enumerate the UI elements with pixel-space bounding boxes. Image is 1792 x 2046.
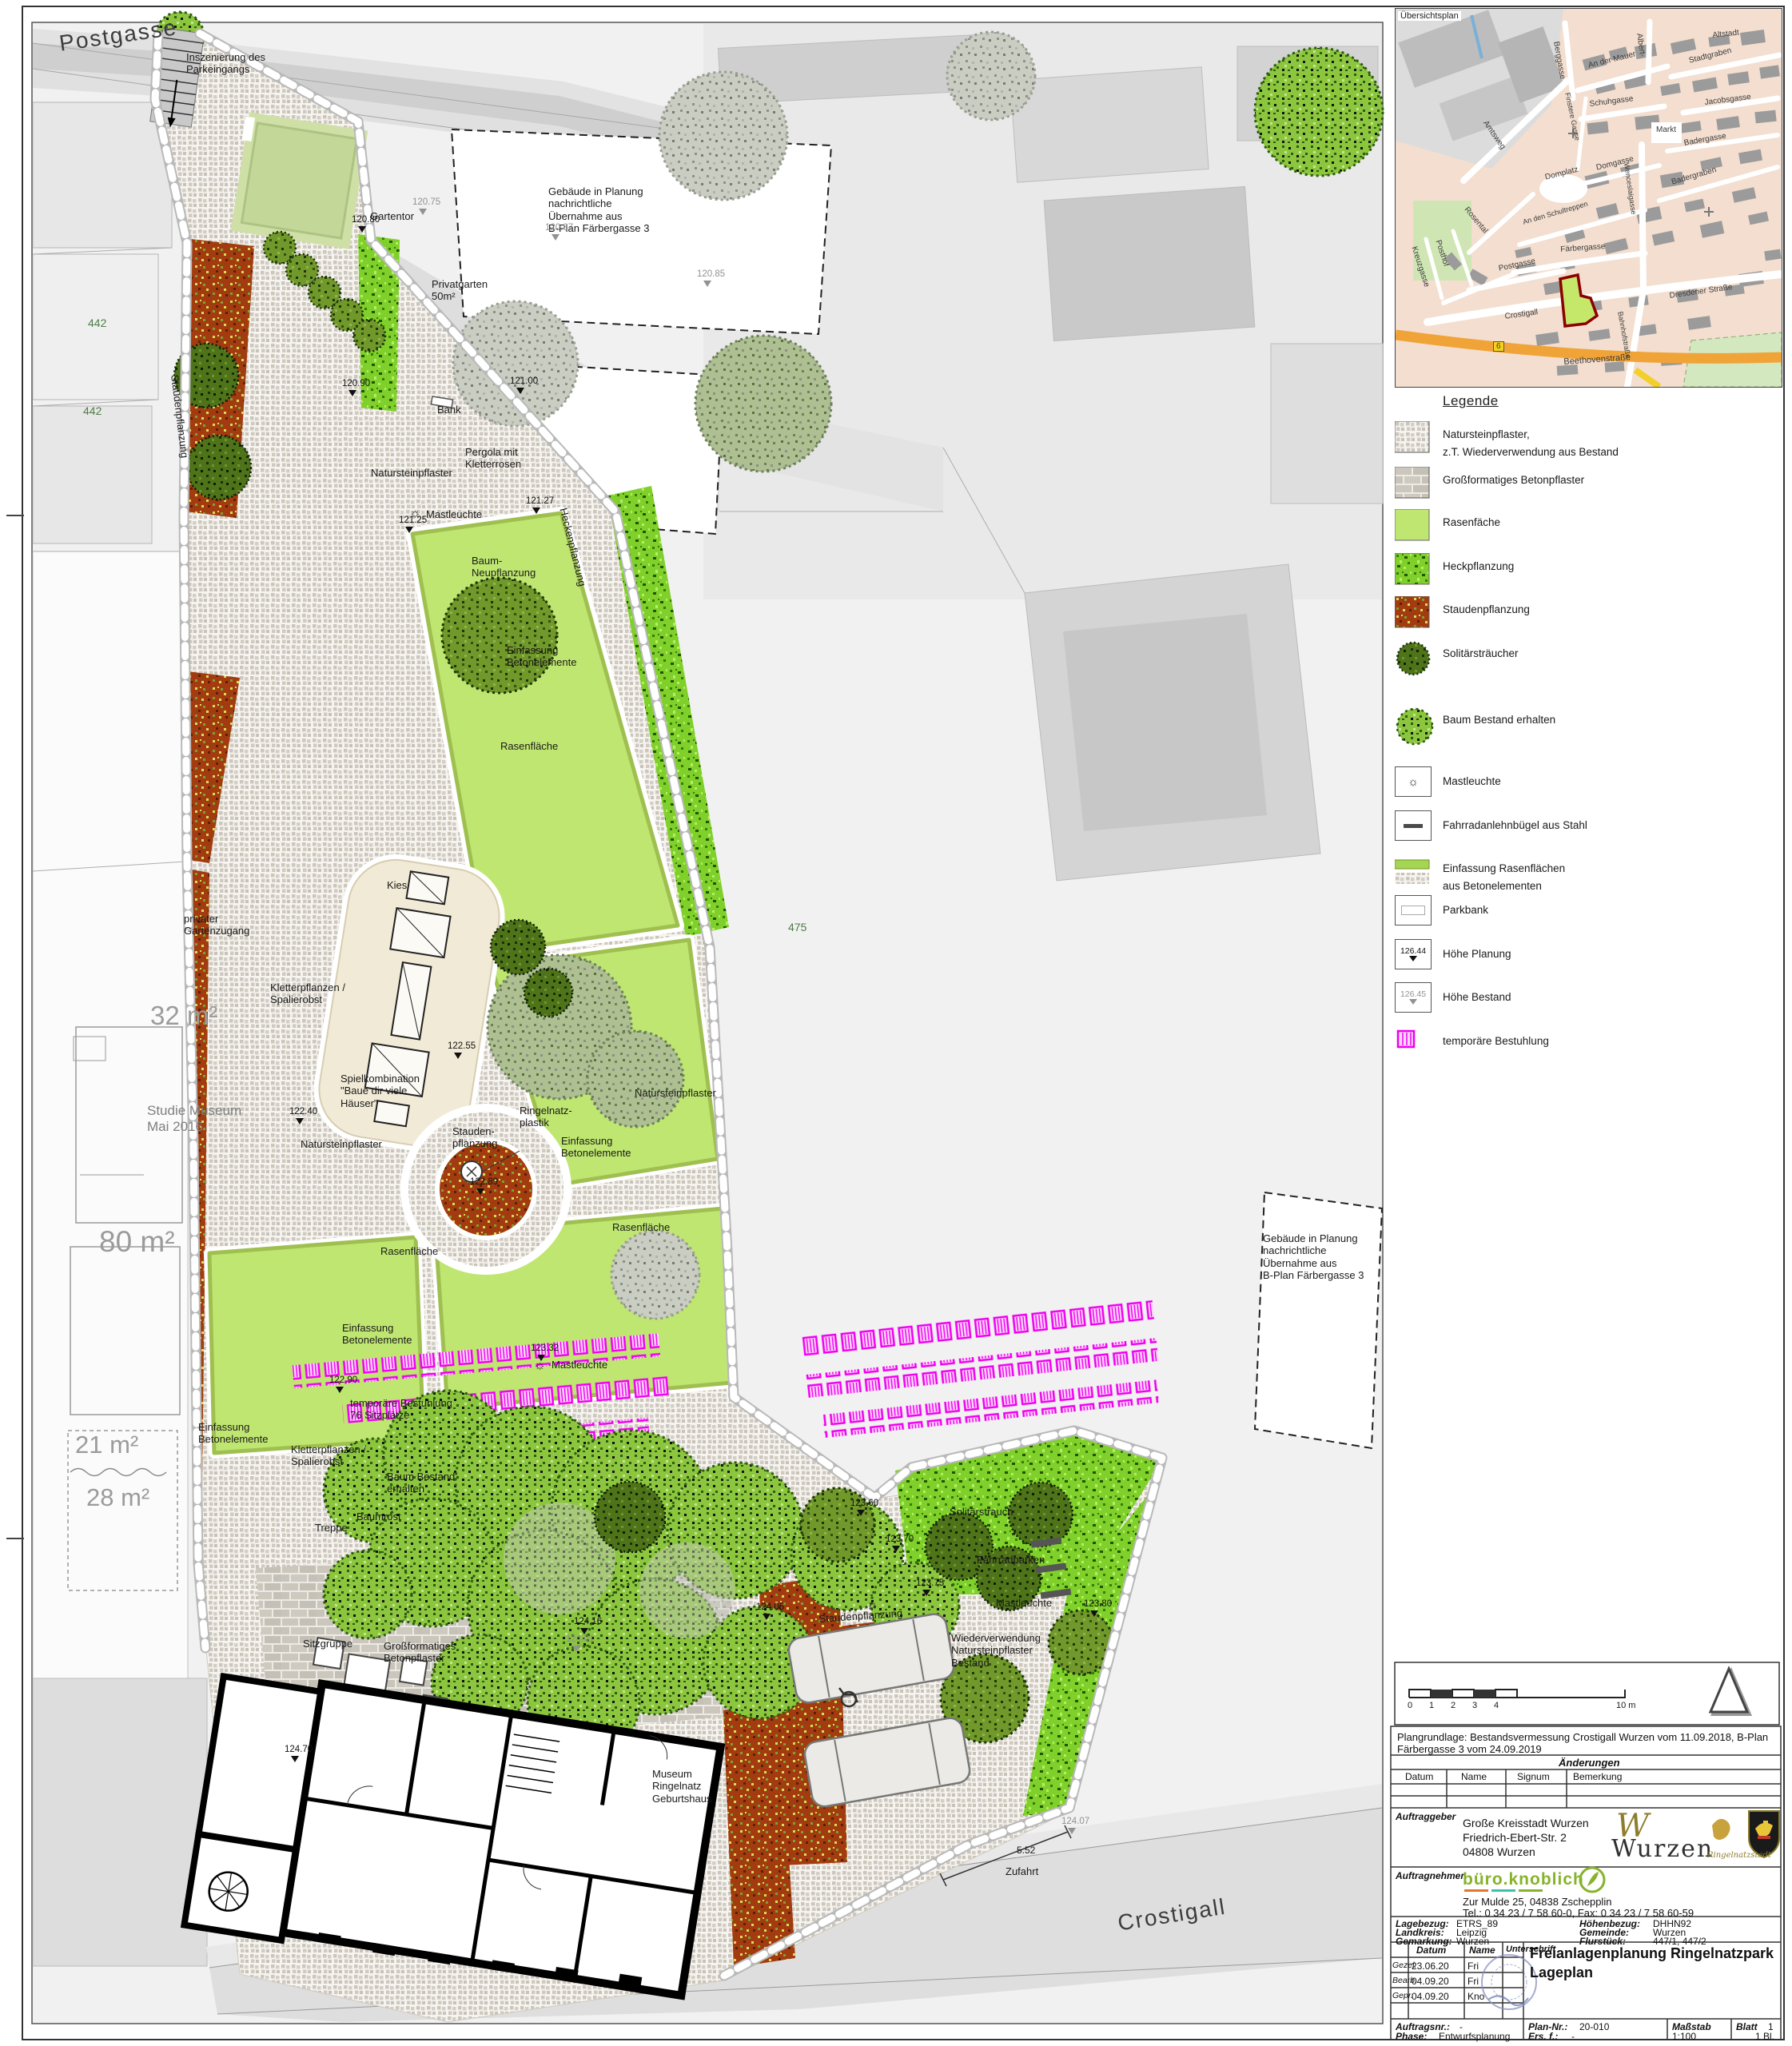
sig-row3-name: Kno <box>1467 1991 1484 2002</box>
ersf-value: - <box>1571 2031 1575 2042</box>
overview-map-title: Übersichtsplan <box>1398 11 1461 21</box>
legend-item-solitaerstraeucher: Solitärsträucher <box>1395 645 1774 682</box>
aenderungen-col-datum: Datum <box>1405 1771 1433 1782</box>
aenderungen-col-bemerkung: Bemerkung <box>1573 1771 1622 1782</box>
bestuhlung-icon <box>1395 1028 1430 1052</box>
plan-subtitle: Lageplan <box>1530 1964 1593 1981</box>
wurzen-logo-sub: Ringelnatzstadt <box>1707 1851 1771 1860</box>
fahrradbuegel-icon <box>1404 824 1423 828</box>
mastleuchte-icon: ☼ <box>1408 776 1419 788</box>
blatt-count: 1 Bl. <box>1755 2031 1774 2042</box>
aenderungen-col-signum: Signum <box>1517 1771 1550 1782</box>
plan-title: Freianlagenplanung Ringelnatzpark <box>1530 1945 1774 1962</box>
map-street-label: Markt <box>1656 125 1676 134</box>
aenderungen-col-name: Name <box>1461 1771 1487 1782</box>
plannr-value: 20-010 <box>1579 2021 1609 2032</box>
legend-item-betonpflaster: Großformatiges Betonpflaster <box>1395 472 1774 508</box>
legend-item-heckpflanzung: Heckpflanzung <box>1395 558 1774 595</box>
plangrundlage-note: Plangrundlage: Bestandsvermessung Crosti… <box>1397 1731 1776 1755</box>
auftraggeber-address: Große Kreisstadt Wurzen Friedrich-Ebert-… <box>1463 1816 1589 1860</box>
sig-col-name: Name <box>1469 1944 1495 1956</box>
map-street-label: 6 <box>1493 341 1504 352</box>
aenderungen-title: Änderungen <box>1559 1757 1620 1769</box>
legend-item-mastleuchte: ☼ Mastleuchte <box>1395 773 1774 810</box>
sig-row3-date: 04.09.20 <box>1412 1991 1449 2002</box>
overview-map: Übersichtsplan AltstadtStadtgrabenAn der… <box>1395 8 1782 388</box>
sig-row2-date: 04.09.20 <box>1412 1976 1449 1987</box>
plan-sheet: Übersichtsplan AltstadtStadtgrabenAn der… <box>0 0 1792 2046</box>
legend-item-hoehe-bestand: 126.45 Höhe Bestand <box>1395 989 1774 1025</box>
firm-address: Zur Mulde 25, 04838 Zschepplin <box>1463 1896 1611 1908</box>
sig-row1-date: 23.06.20 <box>1412 1960 1449 1972</box>
legend-item-natursteinpflaster: Natursteinpflaster, z.T. Wiederverwendun… <box>1395 426 1774 463</box>
phase-value: Entwurfsplanung <box>1439 2031 1510 2042</box>
legend-item-einfassung: Einfassung Rasenflächen aus Betonelement… <box>1395 860 1774 897</box>
ersf-label: Ers. f.: <box>1528 2031 1558 2042</box>
legend-item-staudenpflanzung: Staudenpflanzung <box>1395 601 1774 638</box>
firm-tel: Tel.: 0 34 23 / 7 58 60-0, Fax: 0 34 23 … <box>1463 1907 1694 1919</box>
legend-title: Legende <box>1443 393 1499 409</box>
sig-row3-label: Gepr. <box>1392 1991 1413 2000</box>
legend-item-rasenflaeche: Rasenfäche <box>1395 514 1774 551</box>
wurzen-logo: Wurzen <box>1611 1835 1714 1863</box>
massstab-value: 1:100 <box>1672 2031 1696 2042</box>
auftraggeber-label: Auftraggeber <box>1396 1811 1456 1822</box>
auftragnehmer-label: Auftragnehmer <box>1396 1870 1464 1881</box>
legend-item-hoehe-planung: 126.44 Höhe Planung <box>1395 945 1774 982</box>
phase-label: Phase: <box>1396 2031 1427 2042</box>
legend-item-fahrradbuegel: Fahrradanlehnbügel aus Stahl <box>1395 817 1774 854</box>
buero-knoblich-underline <box>1464 1889 1560 1892</box>
sig-row2-name: Fri <box>1467 1976 1479 1987</box>
blatt-label: Blatt <box>1736 2021 1758 2032</box>
legend-item-baum-bestand: Baum Bestand erhalten <box>1395 711 1774 748</box>
parkbank-icon <box>1401 906 1425 915</box>
legend-item-temporaere-bestuhlung: temporäre Bestuhlung <box>1395 1033 1774 1069</box>
legend-item-parkbank: Parkbank <box>1395 902 1774 938</box>
buero-knoblich-logo: büro.knoblich <box>1463 1870 1584 1889</box>
sig-row1-name: Fri <box>1467 1960 1479 1972</box>
sig-col-datum: Datum <box>1416 1944 1446 1956</box>
